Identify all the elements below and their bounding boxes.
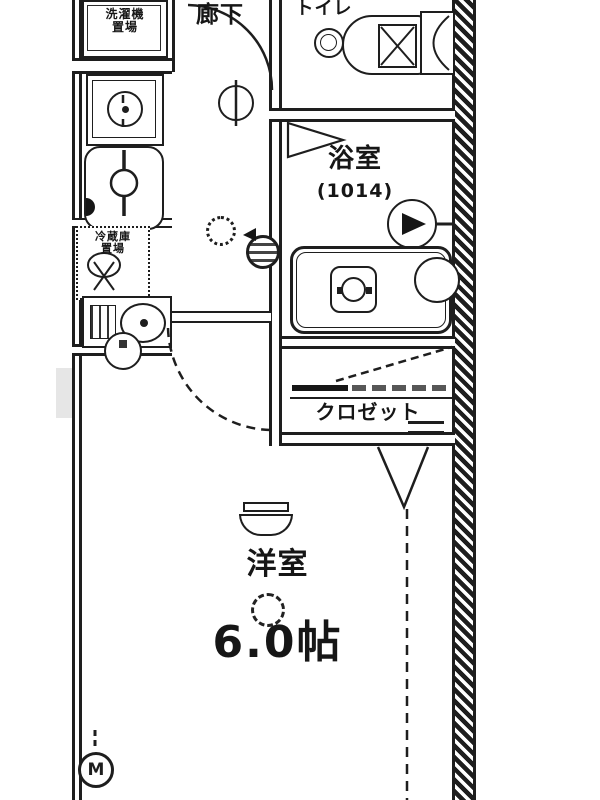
- washbasin-stool-detail: [119, 340, 127, 348]
- hallway-label: 廊下: [178, 3, 262, 27]
- bathtub-drain-icon: [330, 266, 377, 313]
- shower-valve-icon: [387, 199, 437, 249]
- closet-bottom-wall: [282, 432, 455, 446]
- bathroom-label: 浴室: [300, 146, 410, 173]
- pipe-space-box: [420, 11, 455, 75]
- stove-box: [86, 74, 164, 146]
- hall-toilet-spine-wall: [269, 0, 282, 446]
- closet-door-v: [378, 447, 428, 507]
- right-structural-wall: [452, 0, 476, 800]
- washbasin-faucet-dot: [140, 319, 148, 327]
- bathroom-top-wall: [269, 108, 455, 122]
- hall-control-knob-icon: [246, 235, 280, 269]
- room-door-panel: [165, 311, 271, 323]
- stove-burner-dot: [122, 106, 129, 113]
- room-size-label: 6.0帖: [190, 620, 365, 666]
- kitchen-sink: [84, 146, 164, 230]
- room-label: 洋室: [225, 549, 330, 581]
- meter-letter: M: [88, 760, 105, 780]
- hall-dotted-light-icon: [206, 216, 236, 246]
- drain-circle: [341, 277, 366, 302]
- toilet-tank-inner-ring: [320, 34, 337, 51]
- meter-icon: M: [78, 752, 114, 788]
- washbasin-stool-icon: [104, 332, 142, 370]
- toilet-label: トイレ: [286, 0, 362, 19]
- fridge-label-line2: 置場: [101, 242, 125, 255]
- floorplan: 洗濯機 置場 冷蔵庫 置場 廊下 トイレ 浴室 (1014): [0, 0, 600, 800]
- room-ceiling-light-bowl-icon: [239, 514, 293, 536]
- bathroom-size-label: (1014): [300, 182, 410, 202]
- washer-space-label: 洗濯機 置場: [84, 8, 166, 33]
- room-door-arc: [168, 328, 272, 430]
- drain-tick-right: [366, 287, 372, 294]
- toilet-cistern-box: [378, 24, 417, 68]
- bathroom-bottom-wall: [282, 336, 455, 349]
- toilet-tank-ring-icon: [314, 28, 344, 58]
- left-outer-wall: [72, 0, 82, 800]
- bathtub-faucet-icon: [414, 257, 460, 303]
- room-ceiling-light-bar: [243, 502, 289, 512]
- washer-bottom-wall: [72, 58, 172, 74]
- drain-tick-left: [337, 287, 343, 294]
- washer-label-line2: 置場: [112, 20, 138, 34]
- closet-label: クロゼット: [282, 402, 454, 423]
- fridge-space-label: 冷蔵庫 置場: [78, 231, 148, 254]
- hall-ceiling-light-icon: [218, 85, 254, 121]
- closet-diagonal-brace: [336, 347, 452, 381]
